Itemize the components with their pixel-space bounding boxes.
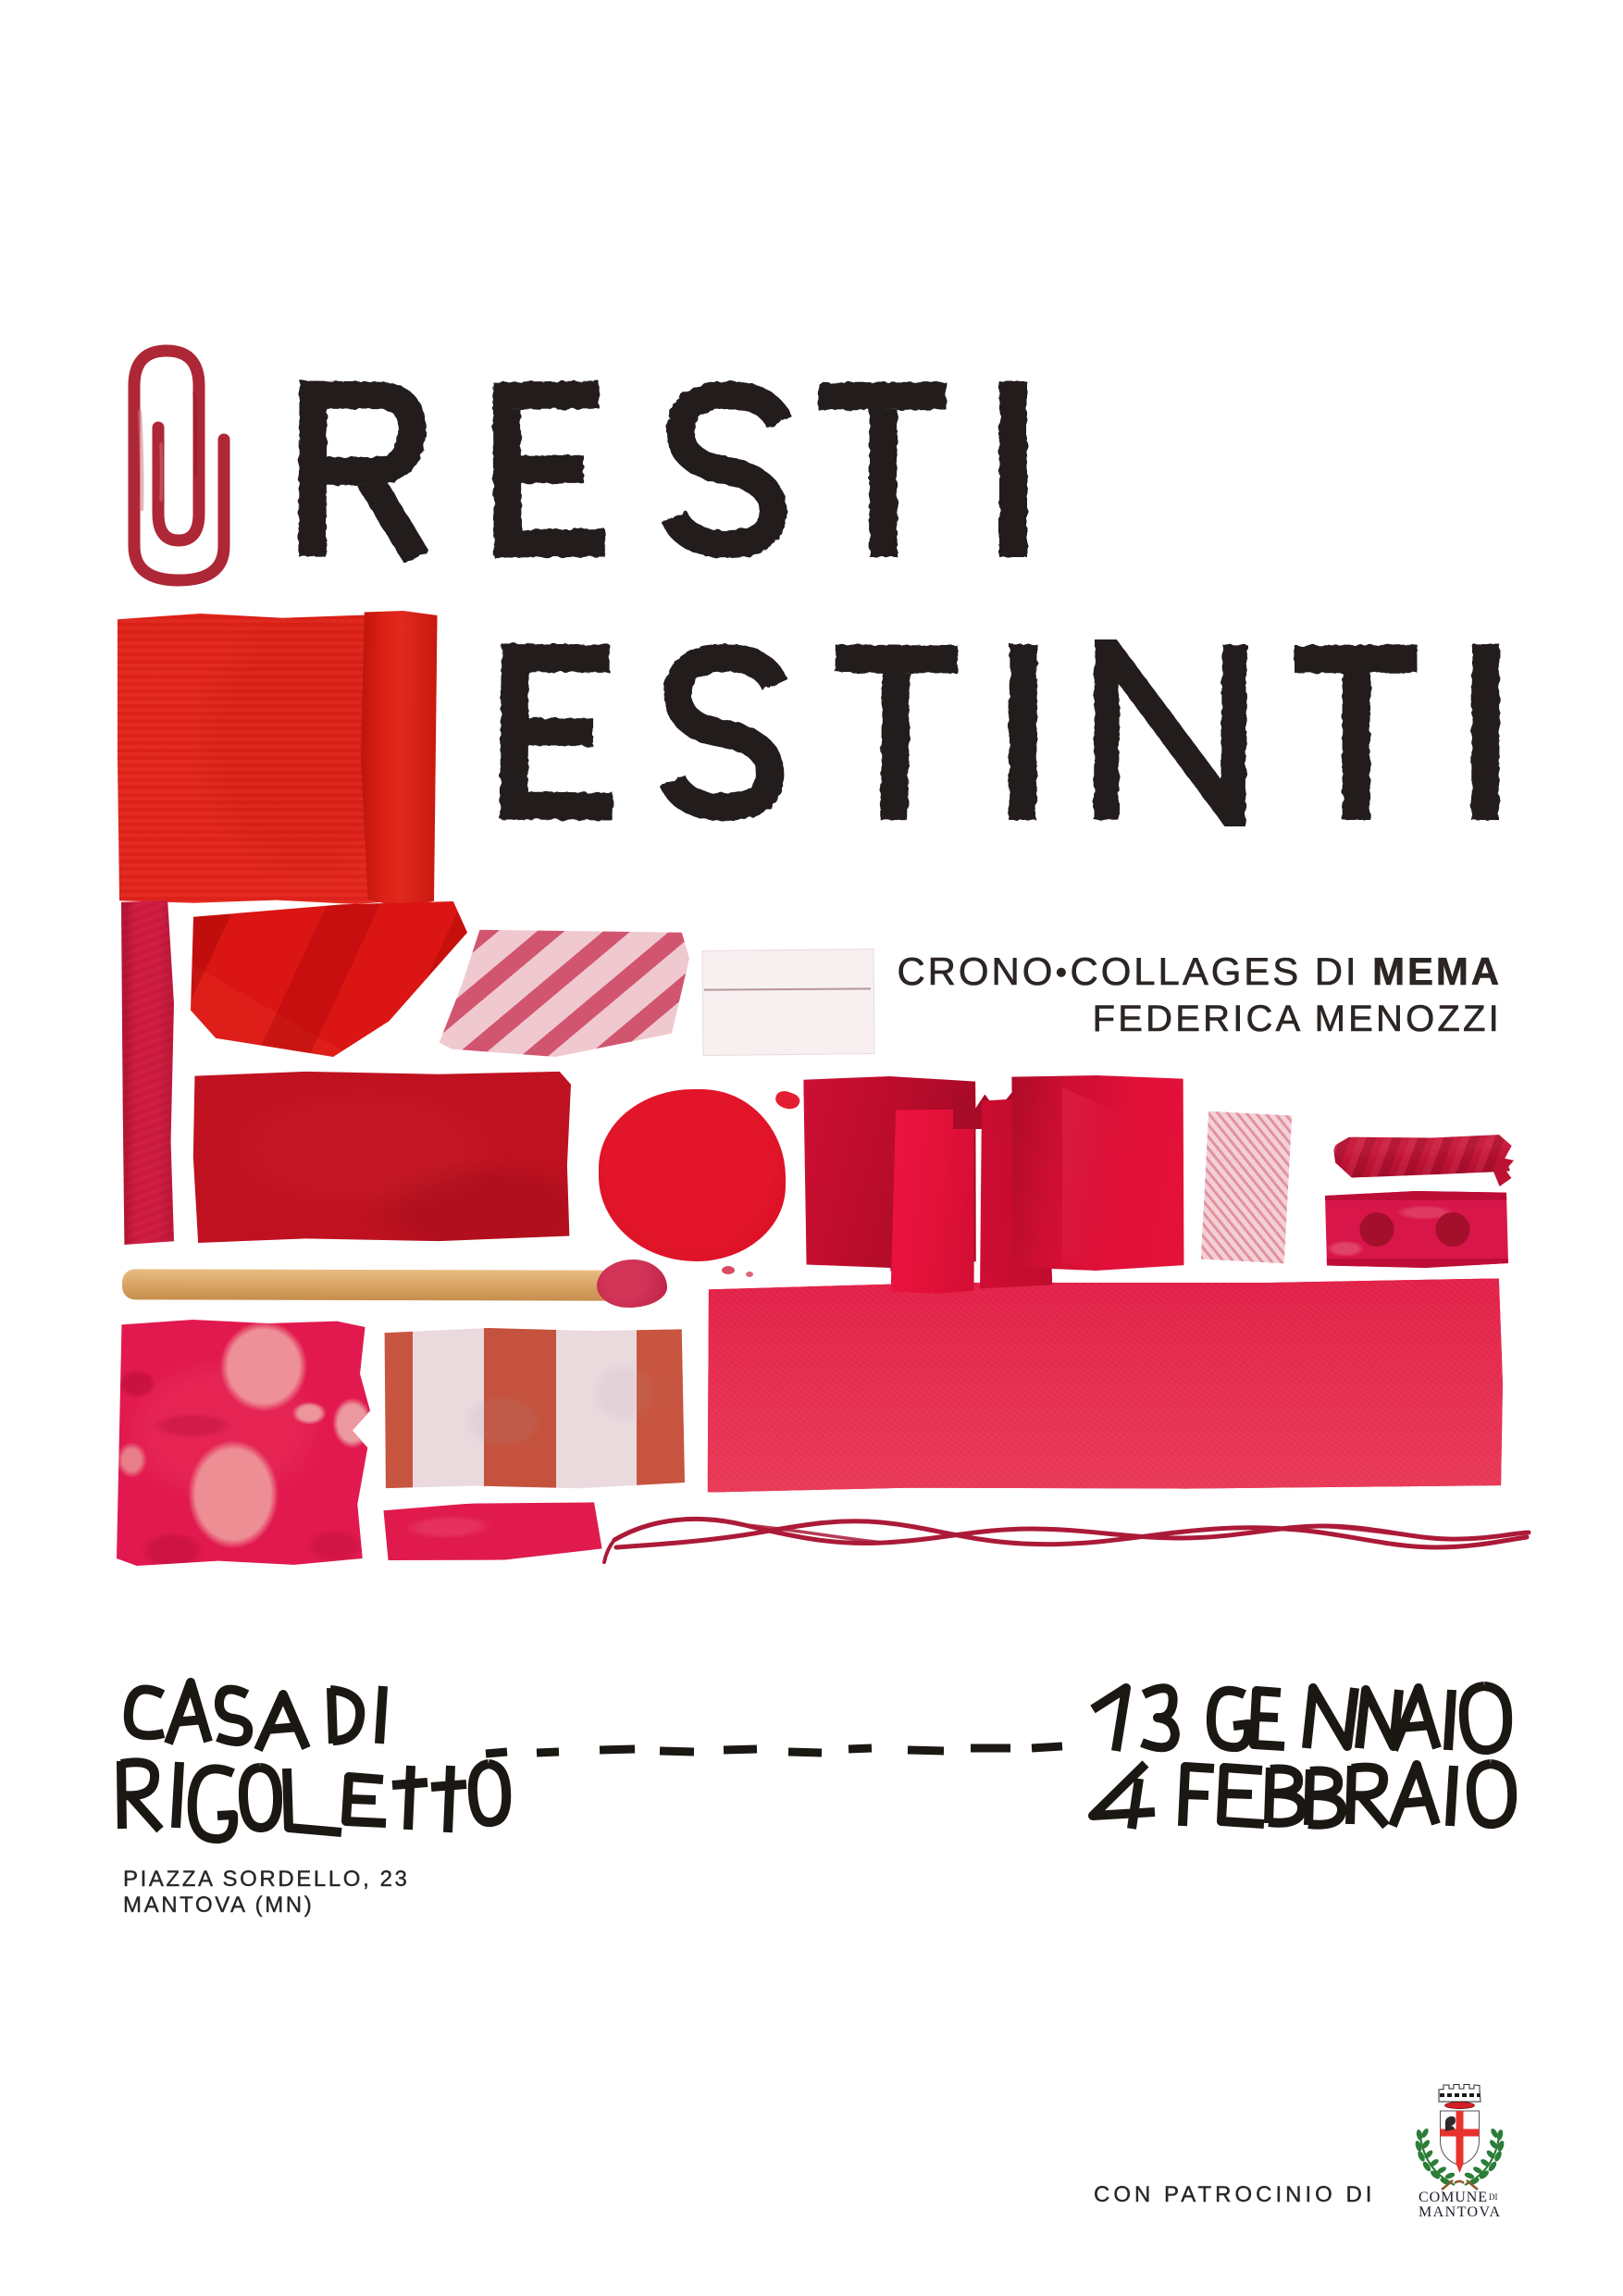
svg-text:COMUNE: COMUNE: [1419, 2190, 1487, 2205]
svg-text:MANTOVA: MANTOVA: [1419, 2204, 1500, 2220]
svg-text:DI: DI: [1489, 2192, 1498, 2202]
